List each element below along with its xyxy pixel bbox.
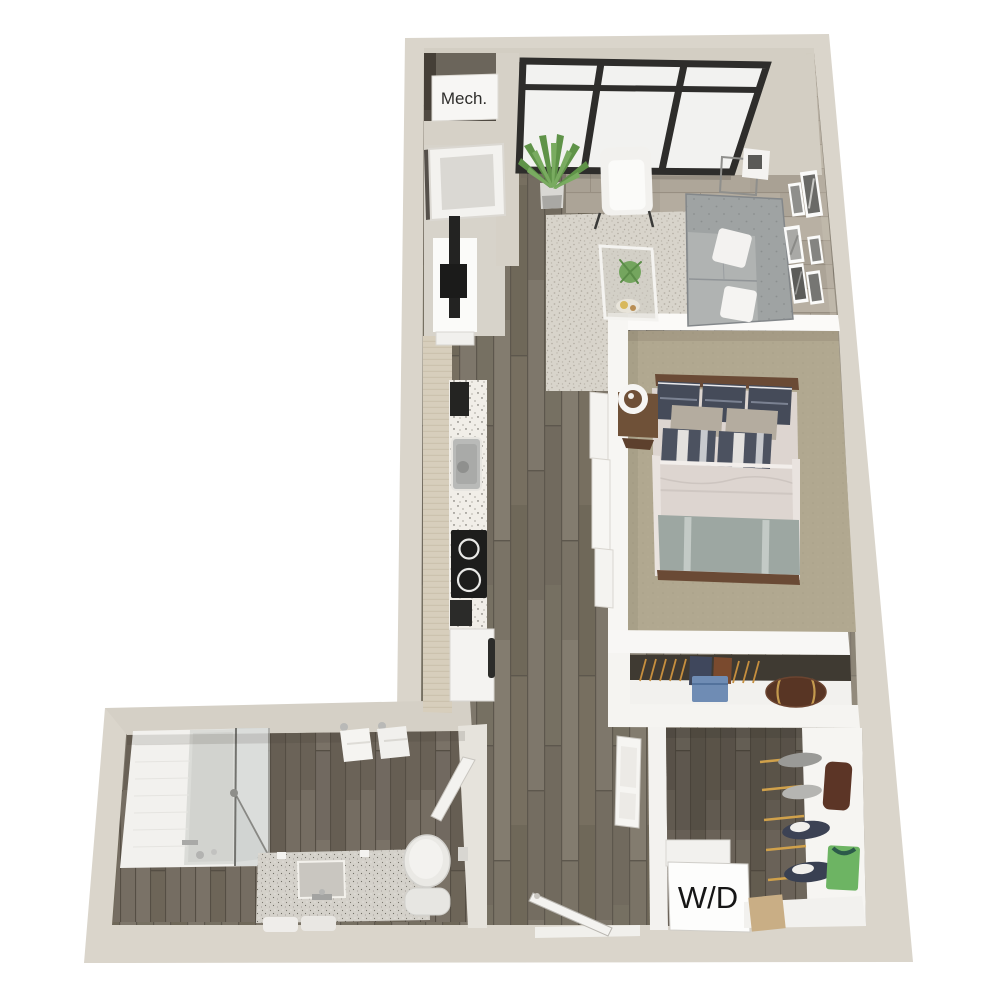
svg-text:Mech.: Mech. bbox=[441, 89, 487, 108]
svg-text:W/D: W/D bbox=[678, 880, 738, 915]
